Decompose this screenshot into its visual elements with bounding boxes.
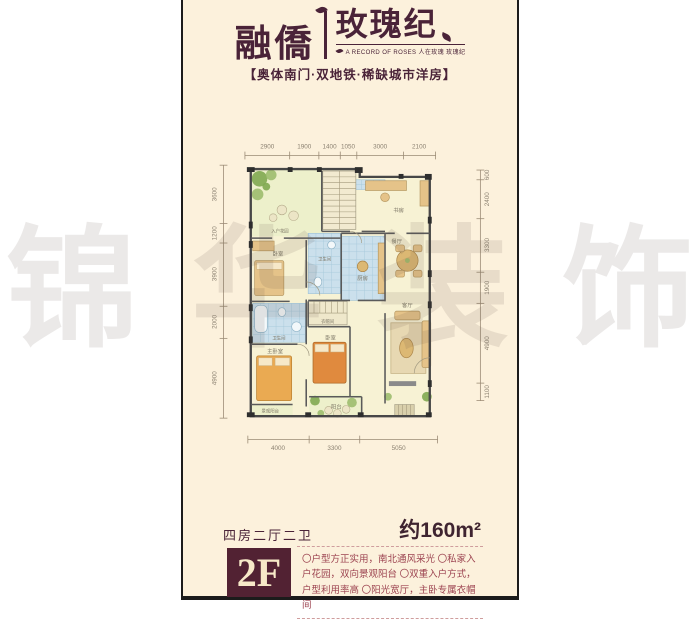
dim-label: 3300 — [327, 445, 342, 452]
dim-label: 1900 — [297, 144, 312, 151]
watermark-char: 锦 — [6, 212, 138, 372]
room-label-entry-garden: 入户花园 — [271, 227, 288, 234]
floor-badge: 2F — [227, 548, 291, 597]
dim-label: 1100 — [484, 385, 491, 399]
room-label-study: 书房 — [393, 206, 404, 214]
dim-label: 1200 — [212, 226, 219, 241]
room-label-dining: 餐厅 — [391, 237, 402, 245]
room-label-closet: 衣帽间 — [321, 318, 334, 325]
dim-label: 2400 — [484, 192, 491, 207]
dim-label: 600 — [484, 169, 491, 180]
room-label-bedroom1: 卧室 — [273, 250, 284, 258]
room-label-bedroom2: 卧室 — [325, 333, 336, 341]
room-label-living: 客厅 — [402, 301, 413, 309]
poster: 融僑 玫瑰纪 A RECORD OF ROSES 人在玫瑰 玫瑰纪 【奥体南门·… — [181, 0, 519, 600]
leaf-icon — [315, 5, 328, 15]
brand-logo: 融僑 玫瑰纪 A RECORD OF ROSES 人在玫瑰 玫瑰纪 — [183, 8, 517, 67]
specs-row: 四房二厅二卫 约160m² — [223, 514, 481, 544]
dim-label: 2000 — [212, 314, 219, 329]
area-label: 约160m² — [399, 514, 481, 544]
dim-label: 4900 — [212, 371, 219, 386]
floor-plan: 2900 1900 1400 1050 3000 2100 3600 1200 … — [204, 136, 496, 459]
dim-label: 3600 — [212, 187, 219, 202]
dim-label: 2900 — [260, 144, 275, 151]
dim-label: 2100 — [412, 144, 427, 151]
dim-label: 4000 — [271, 445, 286, 452]
room-label-balcony: 阳台 — [331, 402, 342, 410]
leaf-icon — [440, 32, 453, 42]
room-label-kitchen: 厨房 — [357, 274, 368, 282]
dim-bottom: 4000 3300 5050 — [248, 436, 438, 453]
dim-label: 1400 — [323, 144, 338, 151]
watermark-char: 饰 — [562, 212, 694, 372]
dim-left: 3600 1200 3900 2000 4900 — [212, 165, 228, 418]
description-text: 〇户型方正实用，南北通风采光 〇私家入户花园，双向景观阳台 〇双重入户方式，户型… — [297, 546, 483, 619]
tagline: 【奥体南门·双地铁·稀缺城市洋房】 — [183, 64, 517, 83]
brand-subtitle-row: A RECORD OF ROSES 人在玫瑰 玫瑰纪 — [336, 44, 466, 56]
brand-name-right-block: 玫瑰纪 A RECORD OF ROSES 人在玫瑰 玫瑰纪 — [336, 8, 466, 56]
dim-label: 3300 — [484, 237, 491, 252]
dim-top: 2900 1900 1400 1050 3000 2100 — [245, 144, 436, 160]
dim-label: 1900 — [484, 280, 491, 295]
dim-label: 1050 — [341, 144, 356, 151]
room-label-master: 主卧室 — [267, 347, 284, 355]
dim-right: 600 2400 3300 1900 4900 1100 — [476, 169, 491, 400]
brand-divider — [324, 11, 327, 59]
brand-name-left: 融僑 — [235, 13, 315, 67]
leaf-icon — [335, 48, 343, 55]
dim-label: 5050 — [392, 445, 407, 452]
room-label-bath2: 卫生间 — [272, 334, 285, 341]
brand-subtitle: A RECORD OF ROSES 人在玫瑰 玫瑰纪 — [346, 47, 466, 56]
room-label-view-balcony: 景观阳台 — [261, 407, 279, 414]
dim-label: 4900 — [484, 336, 491, 351]
staircase — [323, 171, 356, 229]
room-label-bath1: 卫生间 — [318, 256, 331, 263]
dim-label: 3900 — [212, 267, 219, 282]
brand-name-right: 玫瑰纪 — [336, 8, 438, 42]
dim-label: 3000 — [373, 144, 388, 151]
layout-label: 四房二厅二卫 — [223, 525, 313, 544]
